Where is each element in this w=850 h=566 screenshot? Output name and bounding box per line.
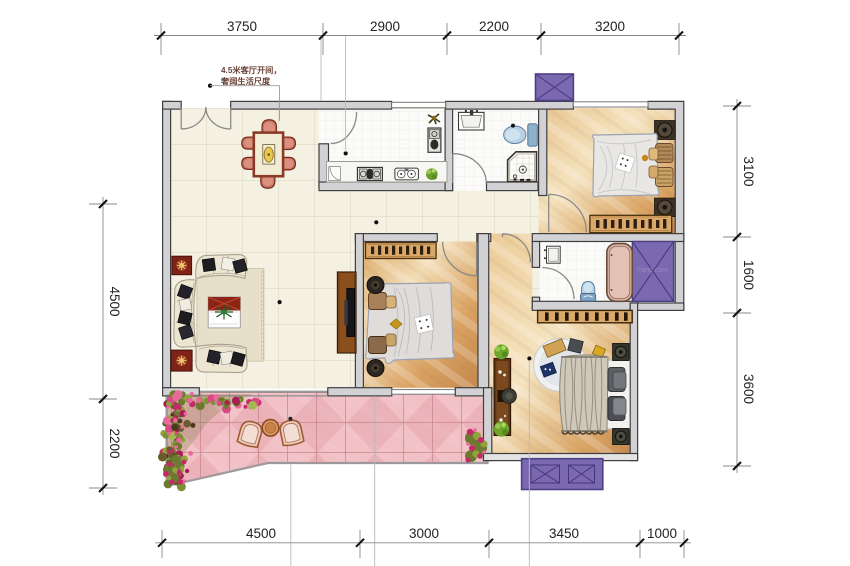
svg-text:3750: 3750 xyxy=(227,19,257,34)
svg-text:3200: 3200 xyxy=(595,19,625,34)
svg-text:奢阔生活尺度: 奢阔生活尺度 xyxy=(220,76,271,86)
svg-text:3000: 3000 xyxy=(409,526,439,541)
svg-text:4500: 4500 xyxy=(107,286,122,316)
svg-text:3600: 3600 xyxy=(741,374,756,404)
svg-text:4.5米客厅开间，: 4.5米客厅开间， xyxy=(221,65,282,75)
svg-text:2900: 2900 xyxy=(370,19,400,34)
svg-text:2200: 2200 xyxy=(107,428,122,458)
svg-text:3450: 3450 xyxy=(549,526,579,541)
svg-text:Fang.com: Fang.com xyxy=(637,267,668,274)
svg-text:1600: 1600 xyxy=(741,260,756,290)
svg-text:3100: 3100 xyxy=(741,156,756,186)
svg-text:2200: 2200 xyxy=(479,19,509,34)
svg-text:4500: 4500 xyxy=(246,526,276,541)
svg-text:1000: 1000 xyxy=(647,526,677,541)
